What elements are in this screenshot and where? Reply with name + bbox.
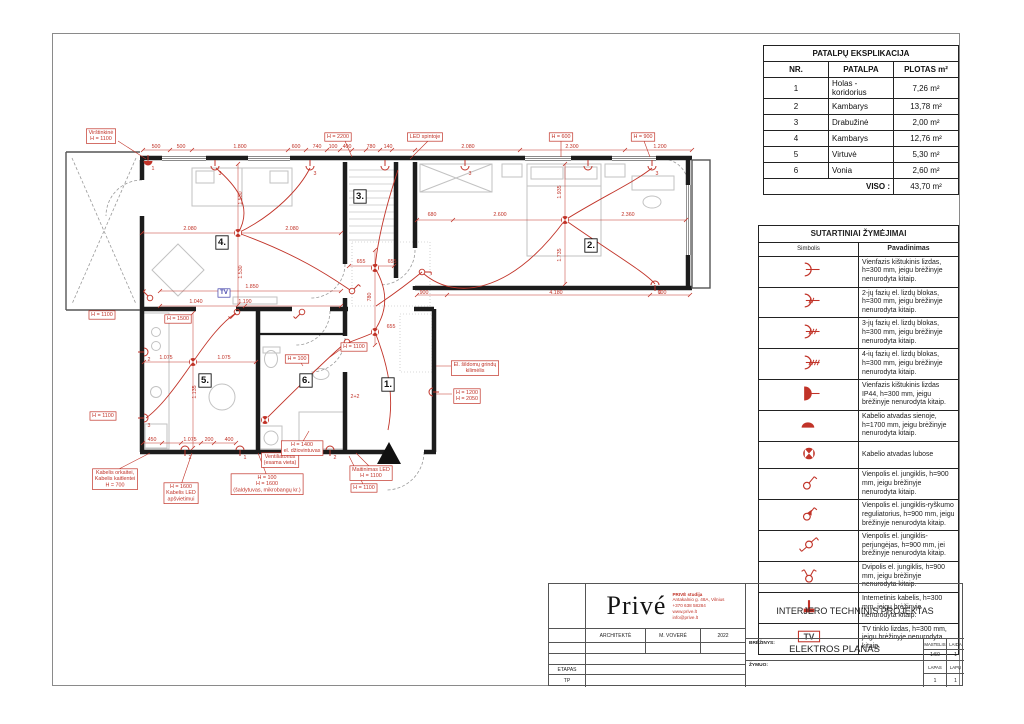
drawing-cell: BRĖŽINYS: ELEKTROS PLANAS [746,639,924,661]
plan-labels: VirštinkinėH = 1100H = 2200LED spintojeH… [86,129,666,504]
plan-label: 740 [313,144,322,150]
plan-label: 655 [357,259,366,265]
switch-icon [299,309,305,315]
laida-value: 1 [947,650,964,661]
drawing-label: BRĖŽINYS: [749,641,775,646]
explication-title: PATALPŲ EKSPLIKACIJA [764,46,959,62]
zymuo-label: ŽYMUO: [749,663,768,668]
switch-2way-icon [794,535,824,554]
legend-text: 4-ių fazių el. lizdų blokas, h=300 mm, j… [859,349,959,380]
plan-label: 1.200 [653,144,666,150]
plan-label: 1.075 [183,437,196,443]
svg-text:3: 3 [656,171,659,177]
etapas-value: TP [549,675,586,687]
legend-row: Vienpolis el. jungiklis-ryškumo reguliat… [759,500,959,531]
title-block: Privé PRIVĖ studijaAntakalnio g. 48A, Vi… [548,583,963,686]
svg-text:3: 3 [469,171,472,177]
dimmer-icon [794,504,824,523]
svg-text:2: 2 [148,357,151,363]
plan-label: TV [220,290,228,296]
tb-logo-cell: Privé PRIVĖ studijaAntakalnio g. 48A, Vi… [586,584,746,629]
svg-text:3: 3 [148,423,151,429]
project-title: INTERJERO TECHNINIS PROJEKTAS [746,584,964,639]
total-label: VISO : [764,179,894,195]
svg-text:1: 1 [152,166,155,172]
legend-text: Kabelio atvadas sienoje, h=1700 mm, jeig… [859,411,959,442]
plan-label: H = 1100 [353,485,375,491]
plan-label: LED spintoje [410,134,441,140]
plan-label: H = 1100 [91,312,113,318]
tb-empty-cell [701,643,746,654]
plan-label: 655 [387,324,396,330]
plan-label: 1.075 [159,355,172,361]
tb-empty-cell [586,665,746,675]
plan-label: H = 900 [633,134,652,140]
socket-icon [181,446,189,450]
plan-label: 2.300 [565,144,578,150]
tb-empty-cell [586,675,746,687]
legend-text: Kabelio atvadas lubose [859,441,959,469]
plan-label: 1.135 [192,385,198,398]
explication-body: 1Holas - koridorius7,26 m²2Kambarys13,78… [764,78,959,179]
legend-row: 4-ių fazių el. lizdų blokas, h=300 mm, j… [759,349,959,380]
socket-icon [651,281,659,285]
legend-text: Vienpolis el. jungiklis-ryškumo reguliat… [859,500,959,531]
tb-empty-cell [646,643,701,654]
scale-label: MASTELIS [924,639,947,650]
lapas-label: LAPAS [924,661,947,674]
plan-label: 1. [384,379,392,390]
cable-wall-icon [794,415,824,434]
socket-1-icon [794,260,824,279]
legend-row: Vienpolis el. jungiklis-perjungėjas, h=9… [759,531,959,562]
lapu-value: 1 [947,674,964,687]
legend-row: 3-jų fazių el. lizdų blokas, h=300 mm, j… [759,318,959,349]
furniture [143,164,674,449]
table-row: 3Drabužinė2,00 m² [764,115,959,131]
plan-label: 2.360 [621,212,634,218]
floor-plan: 33331212232 VirštinkinėH = 1100H = 2200L… [50,120,750,520]
legend-text: 2-jų fazių el. lizdų blokas, h=300 mm, j… [859,287,959,318]
explication-table: PATALPŲ EKSPLIKACIJA NR. PATALPA PLOTAS … [763,45,959,195]
socket-2-icon [794,291,824,310]
col-header-patalpa: PATALPA [829,62,894,78]
tb-empty-cell [549,643,586,654]
laida-label: LAIDA [947,639,964,650]
socket-icon [381,166,389,170]
zymuo-cell: ŽYMUO: [746,661,924,687]
plan-label: 1.935 [557,185,563,198]
legend-text: Vienfazis kištukinis lizdas, h=300 mm, j… [859,256,959,287]
plan-label: 400 [225,437,234,443]
cable-ceiling-icon [794,444,824,463]
plan-label: 780 [367,293,373,302]
plan-label: 140 [384,144,393,150]
tb-empty-cell [586,654,746,665]
plan-label: 1.850 [245,284,258,290]
socket-ip44-icon [794,384,824,403]
plan-label: Ventiliatorius(esama vieta) [264,454,297,466]
plan-label: 1.075 [217,355,230,361]
architect-label: ARCHITEKTĖ [586,629,646,643]
plan-label: 5. [201,375,209,386]
plan-label: H = 100 [287,356,306,362]
socket-icon [461,166,469,170]
socket-icon [144,348,148,356]
plan-label: 1.040 [189,299,202,305]
col-header-nr: NR. [764,62,829,78]
plan-label: 1.735 [557,248,563,261]
svg-text:2: 2 [189,455,192,461]
tb-empty-cell [549,654,586,665]
plan-label: 600 [292,144,301,150]
plan-label: 1.190 [238,299,251,305]
svg-text:3: 3 [219,171,222,177]
plan-label: 2+2 [351,394,360,400]
door-swings [72,158,688,490]
plan-label: 680 [428,212,437,218]
wiring-cables [146,168,655,430]
plan-label: H = 1500 [167,316,189,322]
legend-symbol-header: Simbolis [759,243,859,257]
tb-empty-cell [549,629,586,643]
switch-2pole-icon [794,566,824,585]
legend-text: Vienpolis el. jungiklis-perjungėjas, h=9… [859,531,959,562]
plan-label: 500 [177,144,186,150]
svg-text:2: 2 [334,455,337,461]
electrical-symbols: 33331212232 [138,155,662,461]
legend-title: SUTARTINIAI ŽYMĖJIMAI [759,226,959,243]
plan-label: H = 2200 [327,134,349,140]
svg-text:3: 3 [314,171,317,177]
plan-label: 2.080 [183,226,196,232]
plan-label: 2.080 [461,144,474,150]
plan-label: 2.600 [493,212,506,218]
project-year: 2022 [701,629,746,643]
total-value: 43,70 m² [894,179,959,195]
switch-icon [147,295,153,301]
architect-name: M. VOVERĖ [646,629,701,643]
plan-label: 500 [152,144,161,150]
tb-empty-cell [549,584,586,629]
table-row: 4Kambarys12,76 m² [764,131,959,147]
plan-label: 2. [587,240,595,251]
plan-label: 655 [388,259,397,265]
plan-label: 4.180 [549,290,562,296]
etapas-label: ETAPAS [549,665,586,675]
legend-row: Kabelio atvadas lubose [759,441,959,469]
plan-label: 900 [420,290,429,296]
studio-contact-block: PRIVĖ studijaAntakalnio g. 48A, Vilnius+… [672,592,724,621]
plan-label: 3. [356,191,364,202]
plan-label: 1.530 [238,265,244,278]
lapas-value: 1 [924,674,947,687]
legend-row: Vienfazis kištukinis lizdas, h=300 mm, j… [759,256,959,287]
switch-single-icon [794,473,824,492]
table-row: 2Kambarys13,78 m² [764,99,959,115]
lapu-label: LAPŲ [947,661,964,674]
socket-4-icon [794,353,824,372]
plan-label: 780 [367,144,376,150]
col-header-plotas: PLOTAS m² [894,62,959,78]
table-row: 1Holas - koridorius7,26 m² [764,78,959,99]
legend-text: 3-jų fazių el. lizdų blokas, h=300 mm, j… [859,318,959,349]
socket-icon [236,446,244,450]
legend-text: Vienpolis el. jungiklis, h=900 mm, jeigu… [859,469,959,500]
plan-label: 450 [148,437,157,443]
socket-icon [144,161,152,165]
plan-label: H = 1100 [92,413,114,419]
plan-label: H = 600 [551,134,570,140]
plan-label: H = 1600Kabelis LEDapšvietimui [166,484,196,502]
plan-label: 400 [343,144,352,150]
plan-label: 4. [218,237,226,248]
plan-label: 200 [205,437,214,443]
table-row: 5Virtuvė5,30 m² [764,147,959,163]
plan-label: 1.800 [233,144,246,150]
table-row: 6Vonia2,60 m² [764,163,959,179]
socket-3-icon [794,322,824,341]
legend-row: 2-jų fazių el. lizdų blokas, h=300 mm, j… [759,287,959,318]
tb-empty-cell [586,643,646,654]
plan-label: H = 1200H = 2050 [456,390,478,402]
plan-label: H = 1100 [343,344,365,350]
legend-row: Kabelio atvadas sienoje, h=1700 mm, jeig… [759,411,959,442]
plan-label: 2.080 [285,226,298,232]
legend-row: Vienpolis el. jungiklis, h=900 mm, jeigu… [759,469,959,500]
plan-label: 100 [329,144,338,150]
legend-row: Vienfazis kištukinis lizdas IP44, h=300 … [759,380,959,411]
plan-label: 6. [302,375,310,386]
walls [140,158,692,452]
plan-label: 1.530 [238,191,244,204]
legend-text: Vienfazis kištukinis lizdas IP44, h=300 … [859,380,959,411]
plan-label: VirštinkinėH = 1100 [89,130,114,142]
company-logo: Privé [607,591,667,621]
legend-name-header: Pavadinimas [859,243,959,257]
plan-label: 600 [658,290,667,296]
scale-value: 1:50 [924,650,947,661]
svg-text:1: 1 [244,455,247,461]
